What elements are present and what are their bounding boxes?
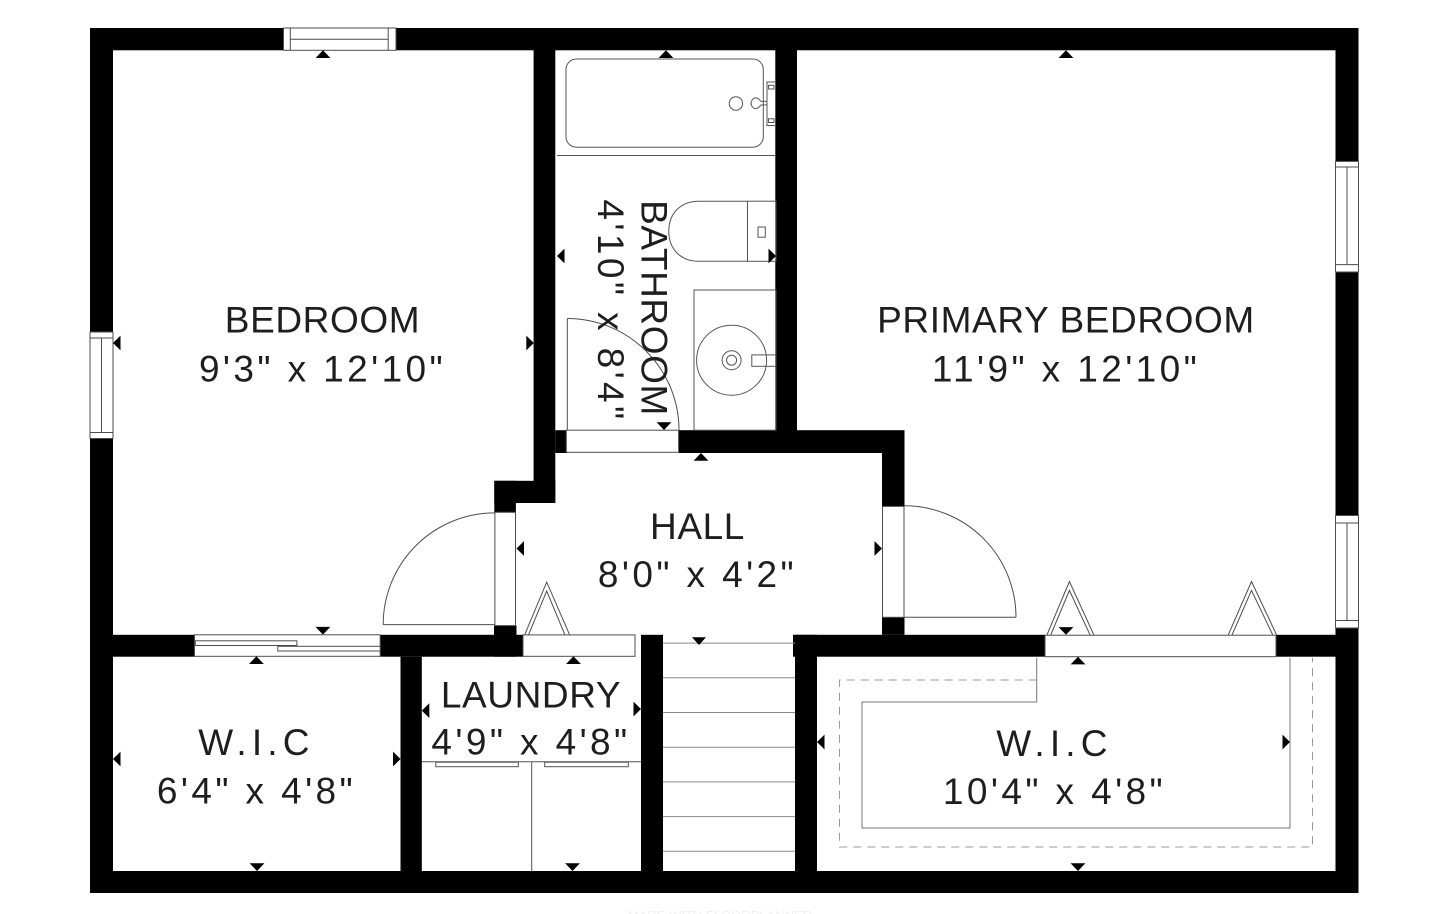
svg-text:LAUNDRY: LAUNDRY — [441, 675, 621, 716]
svg-text:HALL: HALL — [650, 506, 745, 547]
svg-text:4'10" x 8'4": 4'10" x 8'4" — [590, 199, 631, 422]
svg-text:11'9" x 12'10": 11'9" x 12'10" — [932, 349, 1200, 390]
svg-text:9'3" x 12'10": 9'3" x 12'10" — [199, 349, 446, 390]
svg-text:W.I.C: W.I.C — [996, 723, 1112, 764]
svg-text:6'4" x 4'8": 6'4" x 4'8" — [157, 771, 356, 812]
svg-text:PRIMARY BEDROOM: PRIMARY BEDROOM — [877, 300, 1255, 341]
svg-text:8'0" x 4'2": 8'0" x 4'2" — [598, 554, 797, 595]
svg-text:10'4" x 4'8": 10'4" x 4'8" — [943, 771, 1166, 812]
svg-text:MADE WITH FLOORPLANNER: MADE WITH FLOORPLANNER — [628, 908, 812, 914]
svg-text:W.I.C: W.I.C — [198, 722, 314, 763]
svg-text:BATHROOM: BATHROOM — [634, 200, 675, 416]
svg-text:4'9" x 4'8": 4'9" x 4'8" — [431, 722, 630, 763]
svg-text:BEDROOM: BEDROOM — [225, 300, 420, 341]
